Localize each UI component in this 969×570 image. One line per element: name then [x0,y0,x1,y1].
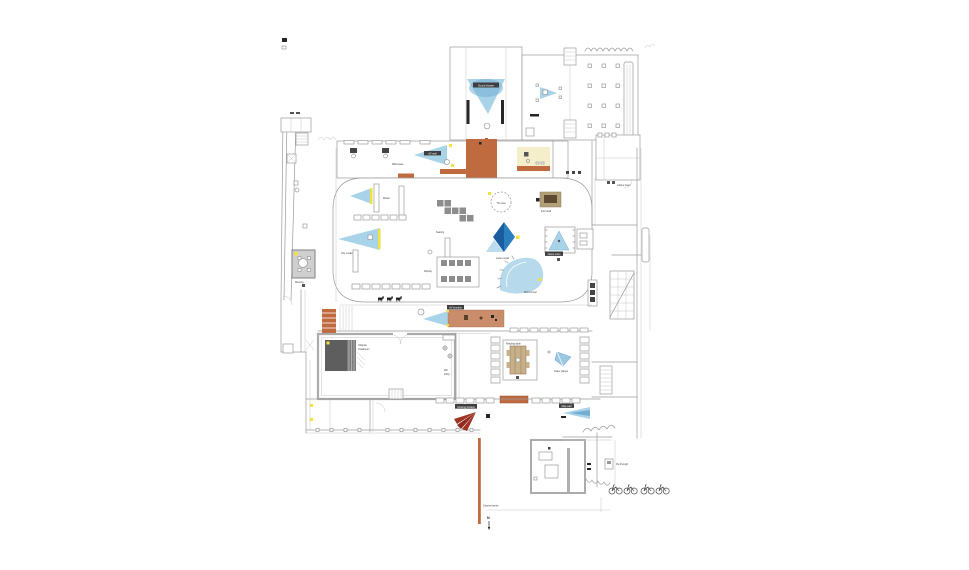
right-wing: Lattice tower [577,141,650,438]
carpet-ramp [447,310,505,327]
floor-plan-page: Sound shower [0,0,969,570]
double-door-icon [394,335,407,344]
south-approach: Fly-through [597,433,669,512]
stair-icon [340,306,352,330]
exhibit-label: AV timeline [449,307,462,310]
exhibit-label: Fly-through [616,463,629,466]
exhibit-label: City model [341,252,353,255]
exhibit-label: Laser model [496,257,510,260]
exhibit-label: Reading table [506,343,521,346]
side-stair-icon [600,366,612,394]
floor-plan-drawing: Sound shower [0,0,969,570]
north-arrow-icon: N [487,516,490,530]
reading-room: WC lobby Reading table Paper p [443,328,589,403]
bicycle-icon [609,485,669,494]
cloakroom-block: Chapple Cloakroom [325,340,370,371]
paper-plane-icon: Paper planes [548,351,572,374]
retail-room [517,147,550,171]
landscape-scallop [583,425,615,432]
exhibit-label: AV wall [428,153,437,156]
exhibit-label: Info kiosk [541,210,552,213]
wc-block [588,280,597,306]
exhibit-label: Map wall [562,405,572,408]
exhibit-label: Wall cases [392,163,404,166]
exhibit-label: Lattice tower [617,184,631,187]
exhibit-label: Glass room [548,253,561,256]
exhibit-label: Viewing window [457,406,475,409]
grand-stair-icon [610,271,634,319]
room-label: Chapple [358,344,368,347]
map-wall-cone-icon: Map wall [559,404,590,420]
exhibit-label: Paper planes [554,370,569,373]
columned-hall [522,44,655,140]
svg-text:N: N [487,516,490,520]
entrance-ramp [466,139,497,178]
projection-cone-icon [423,311,448,326]
exhibit-label: Sound shower [478,84,494,87]
crenellated-wall [585,48,633,51]
small-stair-icon [389,389,403,399]
meeting-room: Meeting [292,250,315,287]
wood-table: Reading table [503,340,537,380]
orange-stair-icon [322,309,336,333]
main-exhibition-hall: Model City model Seating [333,178,592,302]
room-label: Cloakroom [358,348,370,351]
exhibit-label: Model [383,197,390,200]
legend-marks [282,38,300,114]
exhibit-label: Display [424,270,433,273]
exhibit-label: The lens [496,202,506,205]
courtyard-room: Chapple Cloakroom [306,332,455,399]
long-case [624,62,633,138]
room-label: Meeting [295,281,304,284]
stairs-icon [296,133,308,145]
landscape-scallop [586,479,610,485]
upper-gallery-hall: Sound shower [450,47,522,141]
barrier-label: Charter barrier [483,505,499,508]
annex-building [531,437,612,493]
case-row [510,328,588,332]
viewing-window-fan-icon: Viewing window [454,404,490,431]
room-label: WC [444,369,448,372]
exhibit-label: Wind tunnel [524,291,537,294]
room-label: lobby [444,373,451,376]
exhibit-label: Seating [436,231,445,234]
